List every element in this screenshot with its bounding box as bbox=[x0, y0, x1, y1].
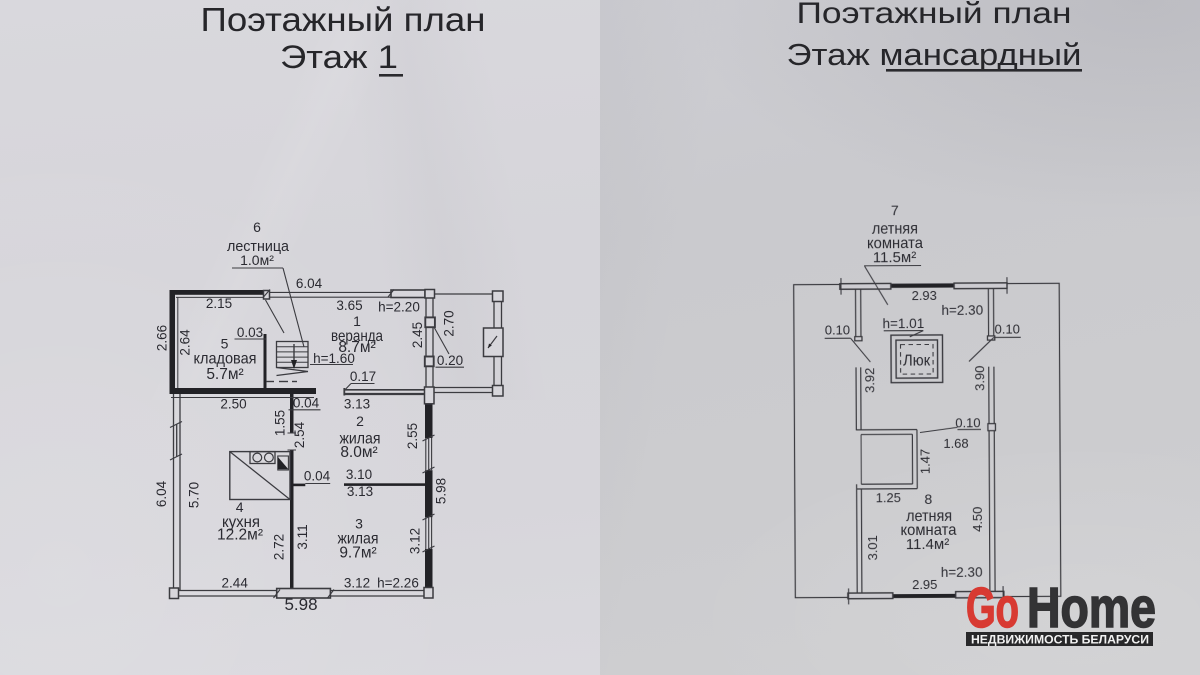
svg-text:1.47: 1.47 bbox=[918, 449, 933, 474]
svg-text:1.25: 1.25 bbox=[876, 490, 901, 505]
svg-text:h=1.01: h=1.01 bbox=[883, 316, 925, 331]
svg-text:0.04: 0.04 bbox=[304, 469, 331, 484]
svg-text:h=2.20: h=2.20 bbox=[378, 300, 420, 315]
svg-text:кладовая: кладовая bbox=[194, 351, 257, 368]
svg-text:3.13: 3.13 bbox=[347, 484, 373, 499]
svg-text:0.04: 0.04 bbox=[293, 396, 320, 411]
svg-text:h=1.60: h=1.60 bbox=[313, 351, 355, 366]
svg-text:6.04: 6.04 bbox=[154, 480, 169, 507]
svg-text:4.50: 4.50 bbox=[970, 507, 985, 532]
svg-text:2.95: 2.95 bbox=[912, 577, 937, 592]
svg-text:5.70: 5.70 bbox=[187, 482, 202, 508]
svg-text:2.54: 2.54 bbox=[292, 421, 307, 448]
svg-text:3.12: 3.12 bbox=[344, 576, 370, 591]
svg-text:3.10: 3.10 bbox=[346, 467, 372, 482]
svg-text:6: 6 bbox=[253, 219, 261, 235]
svg-text:5.98: 5.98 bbox=[434, 478, 449, 504]
svg-text:0.10: 0.10 bbox=[825, 322, 850, 337]
svg-text:2.93: 2.93 bbox=[912, 288, 937, 303]
svg-text:12.2м²: 12.2м² bbox=[217, 527, 263, 544]
svg-text:0.17: 0.17 bbox=[350, 369, 376, 384]
svg-text:1.55: 1.55 bbox=[273, 410, 288, 436]
svg-text:3.65: 3.65 bbox=[336, 298, 362, 313]
svg-text:11.4м²: 11.4м² bbox=[906, 536, 949, 553]
svg-text:2.66: 2.66 bbox=[155, 325, 170, 351]
svg-text:0.10: 0.10 bbox=[995, 322, 1020, 337]
svg-text:h=2.30: h=2.30 bbox=[941, 303, 983, 318]
svg-text:3.12: 3.12 bbox=[408, 528, 423, 554]
svg-text:Go: Go bbox=[966, 576, 1019, 640]
svg-text:Этаж 1: Этаж 1 bbox=[280, 39, 398, 75]
svg-text:h=2.26: h=2.26 bbox=[377, 576, 419, 591]
svg-text:5.7м²: 5.7м² bbox=[206, 366, 243, 383]
svg-text:8: 8 bbox=[924, 491, 932, 507]
svg-text:0.20: 0.20 bbox=[437, 353, 463, 368]
svg-text:5.98: 5.98 bbox=[284, 595, 317, 614]
svg-text:6.04: 6.04 bbox=[296, 276, 323, 291]
svg-text:7: 7 bbox=[891, 202, 899, 218]
svg-text:3.90: 3.90 bbox=[972, 366, 987, 391]
svg-text:2.50: 2.50 bbox=[220, 397, 246, 412]
svg-text:Поэтажный план: Поэтажный план bbox=[201, 1, 486, 38]
svg-text:Этаж мансардный: Этаж мансардный bbox=[787, 37, 1082, 72]
svg-text:2.72: 2.72 bbox=[272, 534, 287, 560]
svg-text:Поэтажный план: Поэтажный план bbox=[797, 0, 1072, 30]
svg-text:3.01: 3.01 bbox=[865, 535, 880, 560]
svg-text:2.45: 2.45 bbox=[410, 322, 425, 348]
svg-text:НЕДВИЖИМОСТЬ БЕЛАРУСИ: НЕДВИЖИМОСТЬ БЕЛАРУСИ bbox=[971, 635, 1149, 647]
svg-text:0.03: 0.03 bbox=[237, 325, 263, 340]
svg-text:1: 1 bbox=[353, 313, 361, 329]
svg-text:2.70: 2.70 bbox=[442, 310, 457, 336]
svg-text:9.7м²: 9.7м² bbox=[339, 545, 376, 562]
svg-text:5: 5 bbox=[221, 336, 229, 352]
svg-text:2.55: 2.55 bbox=[405, 423, 420, 449]
svg-text:0.10: 0.10 bbox=[955, 415, 980, 430]
svg-text:11.5м²: 11.5м² bbox=[873, 249, 916, 266]
svg-text:3: 3 bbox=[355, 516, 363, 532]
svg-text:2: 2 bbox=[356, 413, 364, 429]
svg-text:2.64: 2.64 bbox=[178, 329, 193, 356]
svg-text:3.13: 3.13 bbox=[344, 397, 370, 412]
svg-text:Люк: Люк bbox=[903, 352, 931, 369]
svg-text:2.44: 2.44 bbox=[222, 576, 249, 591]
svg-text:3.92: 3.92 bbox=[862, 368, 877, 393]
svg-text:1.0м²: 1.0м² bbox=[240, 252, 274, 268]
svg-text:8.0м²: 8.0м² bbox=[340, 444, 377, 461]
svg-text:2.15: 2.15 bbox=[206, 296, 232, 311]
svg-text:3.11: 3.11 bbox=[295, 524, 310, 549]
svg-text:4: 4 bbox=[236, 499, 244, 515]
svg-text:Home: Home bbox=[1027, 576, 1156, 640]
svg-text:1.68: 1.68 bbox=[943, 436, 968, 451]
